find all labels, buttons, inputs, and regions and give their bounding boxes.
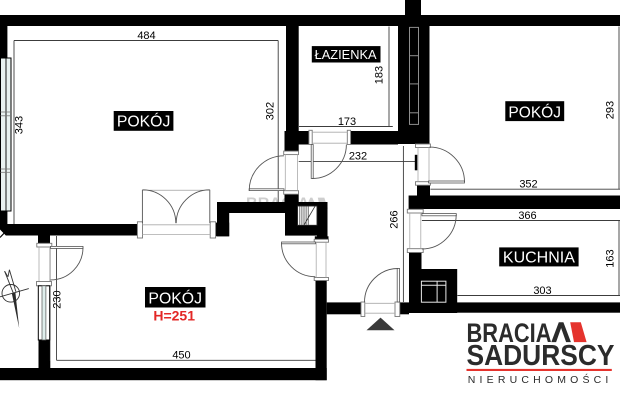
svg-text:POKÓJ: POKÓJ <box>148 289 202 308</box>
svg-text:H=251: H=251 <box>153 308 195 324</box>
svg-text:266: 266 <box>389 210 401 228</box>
svg-text:ŁAZIENKA: ŁAZIENKA <box>315 47 377 62</box>
svg-text:POKÓJ: POKÓJ <box>508 104 561 121</box>
svg-text:302: 302 <box>265 102 277 120</box>
svg-text:NIERUCHOMOŚCI: NIERUCHOMOŚCI <box>468 373 609 386</box>
svg-text:484: 484 <box>137 30 155 42</box>
svg-text:366: 366 <box>518 210 536 222</box>
svg-text:POKÓJ: POKÓJ <box>117 112 171 131</box>
svg-text:232: 232 <box>349 151 367 163</box>
svg-text:450: 450 <box>172 350 190 362</box>
svg-text:SADURSCY: SADURSCY <box>467 340 615 372</box>
svg-text:352: 352 <box>519 179 537 191</box>
svg-text:293: 293 <box>605 101 617 119</box>
svg-text:343: 343 <box>14 116 26 134</box>
svg-text:173: 173 <box>338 116 356 128</box>
svg-text:183: 183 <box>374 66 386 84</box>
svg-text:230: 230 <box>52 290 64 308</box>
svg-text:163: 163 <box>605 249 617 267</box>
svg-text:KUCHNIA: KUCHNIA <box>503 250 575 267</box>
svg-text:303: 303 <box>533 285 551 297</box>
